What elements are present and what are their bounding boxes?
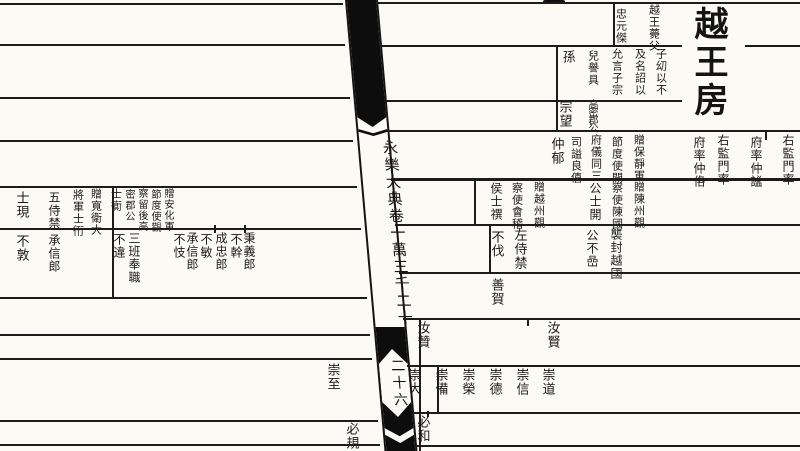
cell-divider-line xyxy=(489,224,491,272)
cell-divider-line xyxy=(556,45,558,130)
text-column: 贈保靜軍 xyxy=(634,134,645,182)
text-column: 允言子宗 xyxy=(612,48,623,96)
text-column: 崇備 xyxy=(434,368,447,396)
table-rule-line xyxy=(0,358,372,360)
cell-divider-line xyxy=(527,318,529,326)
table-rule-line xyxy=(387,130,800,132)
text-column: 孫 xyxy=(561,50,574,64)
text-column: 不伐 xyxy=(490,230,503,258)
text-column: 子㓜以不 xyxy=(656,48,667,96)
table-rule-line xyxy=(0,97,350,99)
table-rule-line xyxy=(0,297,367,299)
text-column: 秉義郎 xyxy=(243,232,255,271)
cell-divider-line xyxy=(474,178,476,224)
text-column: 高密郡公 xyxy=(586,99,596,131)
volume-title: 永樂大典卷一萬三千二十 xyxy=(367,140,412,327)
text-column: 崇德 xyxy=(488,368,501,396)
cell-divider-line xyxy=(437,365,439,412)
text-column: 府儀同三 xyxy=(591,134,602,182)
table-rule-line xyxy=(0,228,361,230)
text-column: 不幹 xyxy=(230,233,242,259)
table-rule-line xyxy=(0,140,353,142)
text-column: 仲郁 xyxy=(550,137,563,165)
text-column: 察使陳國 xyxy=(612,182,623,230)
text-column: 左侍禁 xyxy=(513,228,526,270)
table-rule-line xyxy=(378,2,800,4)
text-column: 汝賢 xyxy=(546,321,559,349)
text-column: 密郡公 xyxy=(123,189,133,222)
table-rule-line xyxy=(0,444,380,446)
text-column: 三班奉職 xyxy=(128,232,140,284)
table-rule-line xyxy=(414,445,800,447)
text-column: 崇至 xyxy=(326,363,339,391)
table-rule-line xyxy=(379,45,682,47)
text-column: 公士開 xyxy=(589,182,601,221)
table-rule-line xyxy=(395,224,800,226)
fishtail-ornament-icon xyxy=(358,129,388,136)
table-rule-line xyxy=(0,44,345,46)
table-rule-line xyxy=(384,100,682,102)
text-column: 兒譽具 xyxy=(588,50,599,86)
text-column: 必和 xyxy=(416,415,429,443)
text-column: 承信郎 xyxy=(48,234,60,273)
text-column: 崇信 xyxy=(515,368,528,396)
fishtail-ornament-icon xyxy=(357,113,387,127)
table-rule-line xyxy=(0,3,343,5)
scanned-book-page: 贈安化軍節度使觀察留後高密郡公士衠贈寬衛大將軍士衎五侍禁士現秉義郎不幹成忠郎不敏… xyxy=(0,0,800,451)
text-column: 贈陳州觀 xyxy=(634,181,645,229)
text-column: 崇榮 xyxy=(461,368,474,396)
text-column: 不違 xyxy=(113,233,125,259)
text-column: 及名詔以 xyxy=(635,48,646,96)
cell-divider-line xyxy=(112,186,114,297)
text-column: 崇道 xyxy=(541,368,554,396)
text-column: 承信郎 xyxy=(186,232,198,271)
text-column: 善賀 xyxy=(490,278,503,306)
text-column: 贈越州觀 xyxy=(534,181,545,229)
text-column: 察留後高 xyxy=(136,188,146,232)
text-column: 五侍禁 xyxy=(48,191,60,230)
text-column: 侯士禩 xyxy=(490,182,502,221)
table-rule-line xyxy=(0,420,378,422)
table-rule-line xyxy=(745,45,800,47)
text-column: 不敏 xyxy=(200,233,212,259)
text-column: 成忠郎 xyxy=(215,232,227,271)
table-rule-line xyxy=(391,178,800,181)
table-rule-line xyxy=(411,412,800,414)
text-column: 節度使觀 xyxy=(149,189,159,233)
table-rule-line xyxy=(399,272,800,274)
text-column: 宗望 xyxy=(558,100,571,128)
folio-number: 二十六 xyxy=(387,358,407,409)
text-column: 忠元傑 xyxy=(616,8,627,44)
cell-divider-line xyxy=(613,2,615,45)
text-column: 汝贊 xyxy=(416,321,429,349)
cell-divider-line xyxy=(419,318,421,451)
table-rule-line xyxy=(0,334,370,336)
spine-black-bar-top xyxy=(347,0,386,113)
cell-divider-line xyxy=(244,225,246,233)
text-column: 贈安化軍 xyxy=(162,188,172,232)
table-rule-line xyxy=(403,318,800,320)
text-column: 司謚良僖 xyxy=(571,136,582,184)
cell-divider-line xyxy=(427,411,429,417)
cell-divider-line xyxy=(765,131,767,140)
text-column: 士現 xyxy=(15,191,28,219)
table-rule-line xyxy=(407,365,800,367)
house-title: 越王房 xyxy=(691,6,725,120)
cell-divider-line xyxy=(214,225,216,233)
text-column: 公不嵒 xyxy=(586,229,598,268)
text-column: 不忮 xyxy=(173,233,185,259)
text-column: 察使會稽 xyxy=(512,182,523,230)
text-column: 節度使開 xyxy=(612,136,623,184)
table-rule-line xyxy=(0,186,357,188)
text-column: 不敦 xyxy=(15,234,28,262)
